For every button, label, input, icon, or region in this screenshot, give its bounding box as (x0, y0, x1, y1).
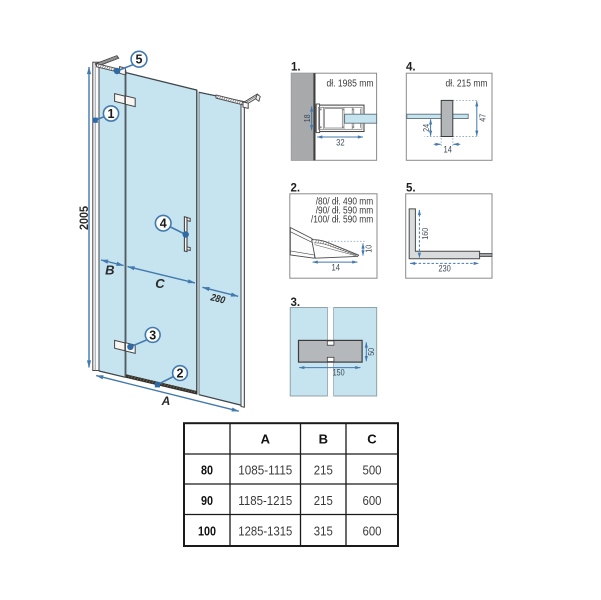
svg-text:2.: 2. (291, 182, 301, 194)
svg-text:90: 90 (201, 493, 213, 508)
svg-text:1185-1215: 1185-1215 (238, 493, 292, 508)
svg-text:1: 1 (108, 107, 115, 121)
svg-text:14: 14 (332, 263, 341, 273)
svg-text:100: 100 (198, 524, 216, 539)
svg-text:47: 47 (477, 114, 487, 122)
svg-text:2: 2 (177, 367, 184, 381)
svg-text:B: B (105, 262, 114, 277)
svg-text:600: 600 (363, 493, 382, 508)
svg-text:/100/ dł. 590 mm: /100/ dł. 590 mm (311, 215, 373, 226)
svg-text:24: 24 (421, 124, 431, 132)
svg-text:C: C (367, 432, 377, 447)
svg-text:dł. 215 mm: dł. 215 mm (446, 79, 488, 90)
svg-text:10: 10 (364, 245, 374, 253)
svg-text:32: 32 (336, 138, 345, 148)
svg-text:A: A (261, 432, 271, 447)
svg-text:215: 215 (314, 463, 333, 478)
svg-text:3: 3 (149, 328, 156, 342)
svg-text:18: 18 (302, 114, 312, 122)
svg-text:600: 600 (363, 524, 382, 539)
svg-text:5.: 5. (406, 182, 416, 194)
svg-text:2005: 2005 (79, 205, 91, 230)
svg-text:80: 80 (201, 463, 213, 478)
svg-text:315: 315 (314, 524, 333, 539)
svg-text:50: 50 (366, 348, 376, 356)
svg-text:C: C (155, 276, 165, 291)
svg-text:150: 150 (333, 367, 345, 377)
svg-text:500: 500 (363, 463, 382, 478)
svg-text:4.: 4. (406, 62, 416, 74)
svg-text:215: 215 (314, 493, 333, 508)
svg-text:4: 4 (160, 217, 167, 231)
svg-text:14: 14 (444, 144, 453, 154)
svg-text:A: A (161, 394, 171, 408)
svg-text:1285-1315: 1285-1315 (238, 524, 292, 539)
svg-text:1.: 1. (291, 62, 301, 74)
svg-text:1085-1115: 1085-1115 (238, 463, 292, 478)
svg-text:dł. 1985 mm: dł. 1985 mm (327, 79, 374, 90)
svg-text:3.: 3. (291, 297, 301, 309)
svg-text:230: 230 (438, 263, 451, 273)
svg-text:160: 160 (420, 228, 430, 240)
svg-text:5: 5 (136, 53, 143, 67)
svg-text:B: B (319, 432, 328, 447)
